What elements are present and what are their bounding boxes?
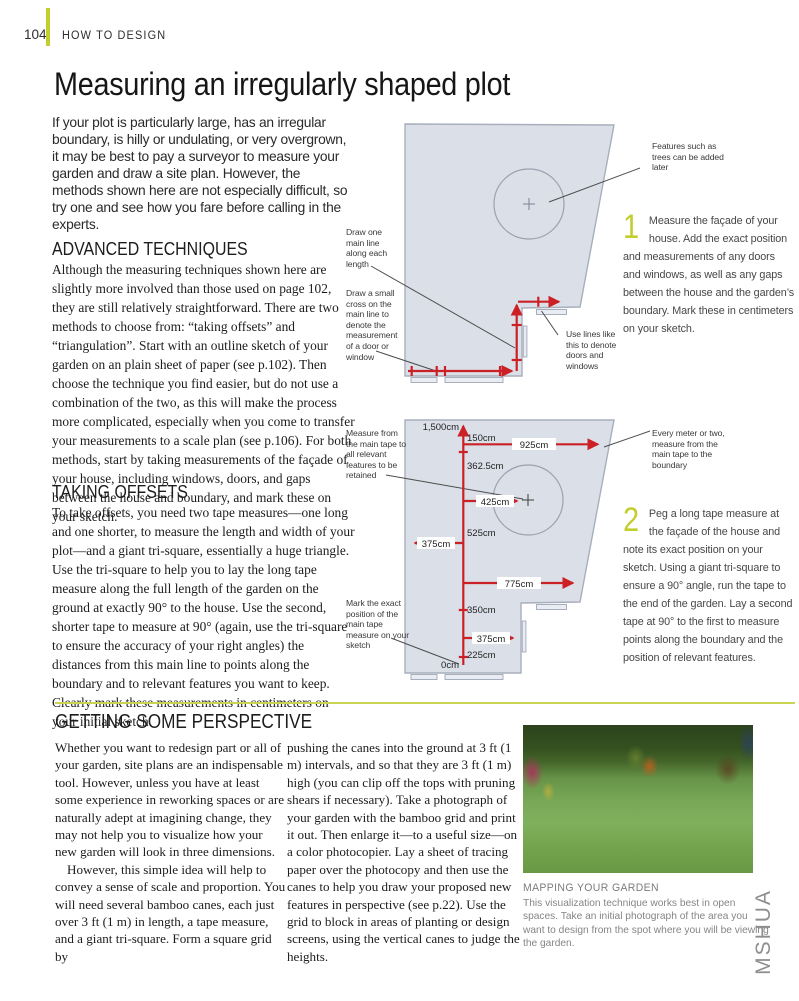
photo-caption-title: MAPPING YOUR GARDEN [523,882,659,894]
measure-375-right: 375cm [477,634,506,645]
heading-advanced-techniques: ADVANCED TECHNIQUES [52,238,248,260]
heading-getting-perspective: GETTING SOME PERSPECTIVE [55,711,312,734]
page-number: 104 [24,27,47,42]
measure-925: 925cm [520,440,549,451]
measure-225: 225cm [467,650,496,661]
measure-425: 425cm [481,497,510,508]
label-measure-from-tape: Measure from the main tape to all releva… [346,428,408,481]
vertical-edge-text: MSHUA [752,867,778,997]
measure-362-5: 362.5cm [467,461,504,472]
measure-350: 350cm [467,605,496,616]
measure-1500: 1,500cm [423,422,460,433]
accent-bar [46,8,50,46]
perspective-column-1: Whether you want to redesign part or all… [55,739,286,965]
label-draw-small-cross: Draw a small cross on the main line to d… [346,288,404,362]
section-label: HOW TO DESIGN [62,30,166,42]
step-1-text: Measure the façade of your house. Add th… [623,215,794,335]
label-every-meter: Every meter or two, measure from the mai… [652,428,730,470]
measure-375-left: 375cm [422,539,451,550]
heading-taking-offsets: TAKING OFFSETS [52,481,188,503]
perspective-paragraph-2: However, this simple idea will help to c… [55,861,286,965]
book-page: 104 HOW TO DESIGN Measuring an irregular… [0,0,799,1001]
step-2: 2 Peg a long tape measure at the façade … [623,504,795,666]
perspective-paragraph-3: pushing the canes into the ground at 3 f… [287,739,520,965]
perspective-column-2: pushing the canes into the ground at 3 f… [287,739,520,965]
taking-offsets-body: To take offsets, you need two tape measu… [52,503,356,731]
label-draw-main-line: Draw one main line along each length [346,227,398,269]
measure-150: 150cm [467,433,496,444]
step-2-text: Peg a long tape measure at the façade of… [623,508,792,664]
intro-paragraph: If your plot is particularly large, has … [52,114,348,233]
measure-0: 0cm [441,660,459,671]
section-divider-rule [55,702,795,704]
page-title: Measuring an irregularly shaped plot [54,66,510,103]
step-1: 1 Measure the façade of your house. Add … [623,211,795,337]
perspective-paragraph-1: Whether you want to redesign part or all… [55,739,286,861]
garden-photo [523,725,753,873]
measure-525: 525cm [467,528,496,539]
label-mark-exact-position: Mark the exact position of the main tape… [346,598,412,651]
step-1-number: 1 [623,212,639,242]
photo-caption-body: This visualization technique works best … [523,897,769,951]
measure-775: 775cm [505,579,534,590]
step-2-number: 2 [623,505,639,535]
label-use-lines: Use lines like this to denote doors and … [566,329,621,371]
label-features-trees: Features such as trees can be added late… [652,141,726,173]
